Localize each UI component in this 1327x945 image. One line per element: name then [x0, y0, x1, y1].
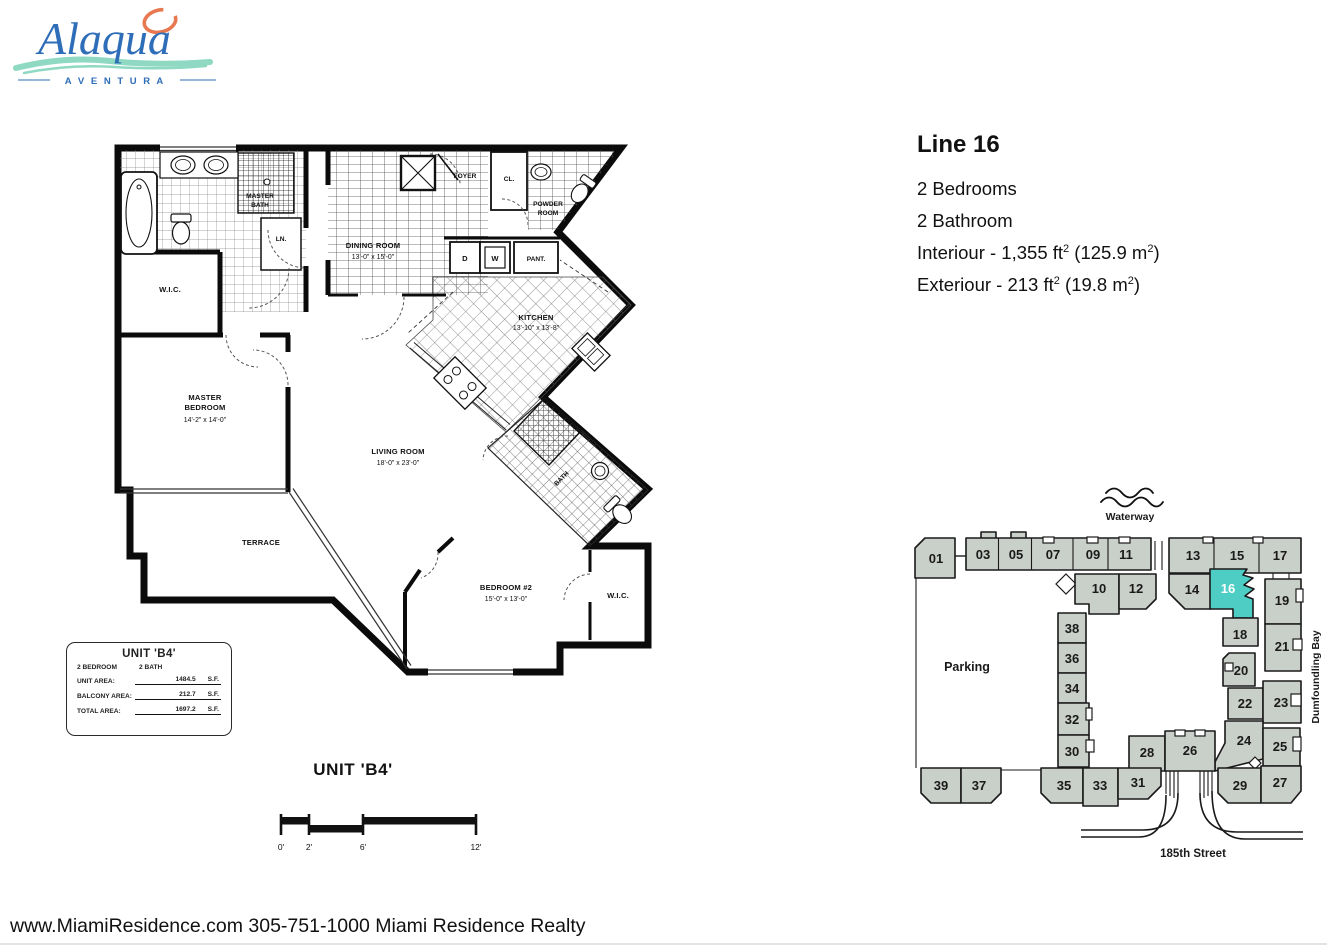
siteplan-unit-35: 35	[1041, 768, 1083, 803]
floorplan-drawing: MASTER BATH W.I.C. LN. FOYER CL. POWDER …	[108, 140, 666, 685]
siteplan-unit-30: 30	[1058, 735, 1094, 767]
shower-head-icon	[264, 179, 270, 185]
logo-subtitle: A V E N T U R A	[65, 76, 166, 87]
unit-box-bath: 2 BATH	[139, 664, 162, 671]
label-linen: LN.	[276, 236, 287, 243]
total-area-unit: S.F.	[208, 706, 219, 713]
siteplan-unit-21: 21	[1265, 624, 1302, 671]
interior-pre: Interiour - 1,355 ft	[917, 242, 1063, 263]
unit-19-label: 19	[1275, 593, 1289, 608]
balcony-area-row: BALCONY AREA: 212.7 S.F.	[77, 691, 221, 700]
label-living-dim: 18'-0" x 23'-0"	[377, 460, 420, 467]
unit-07-label: 07	[1046, 547, 1060, 562]
unit-box-bed: 2 BEDROOM	[77, 664, 139, 671]
unit-27-label: 27	[1273, 775, 1287, 790]
label-dryer: D	[462, 254, 468, 263]
unit-28-label: 28	[1140, 745, 1154, 760]
siteplan-unit-25: 25	[1263, 728, 1301, 766]
total-area-row: TOTAL AREA: 1697.2 S.F.	[77, 706, 221, 715]
siteplan-unit-19: 19	[1265, 579, 1303, 624]
balcony-area-label: BALCONY AREA:	[77, 693, 135, 700]
siteplan-unit-10: 10	[1075, 574, 1119, 614]
unit-33-label: 33	[1093, 778, 1107, 793]
unit-35-label: 35	[1057, 778, 1071, 793]
label-terrace: TERRACE	[242, 538, 280, 547]
label-washer: W	[491, 254, 499, 263]
label-powder-2: ROOM	[538, 210, 559, 217]
siteplan-unit-23: 23	[1263, 681, 1301, 723]
label-master-bath-2: BATH	[251, 202, 269, 209]
total-area-label: TOTAL AREA:	[77, 708, 135, 715]
exterior-post: )	[1134, 274, 1140, 295]
unit-25-label: 25	[1273, 739, 1287, 754]
siteplan-unit-31: 31	[1118, 768, 1161, 799]
unit-11-label: 11	[1119, 547, 1133, 562]
label-living: LIVING ROOM	[371, 447, 424, 456]
unit-13-label: 13	[1186, 548, 1200, 563]
toilet-icon	[171, 214, 191, 244]
label-master-bedroom-1: MASTER	[188, 393, 222, 402]
label-bedroom2-dim: 15'-0" x 13'-0"	[485, 596, 528, 603]
unit-30-label: 30	[1065, 744, 1079, 759]
label-master-bath-1: MASTER	[246, 193, 274, 200]
waterway-waves-icon	[1101, 489, 1163, 507]
label-foyer: FOYER	[454, 173, 477, 180]
footer-contact: www.MiamiResidence.com 305-751-1000 Miam…	[10, 915, 586, 938]
unit-area-value: 1484.5	[175, 676, 195, 683]
label-kitchen-dim: 13'-10" x 13'-8"	[513, 325, 560, 332]
exterior-pre: Exteriour - 213 ft	[917, 274, 1054, 295]
parking-boundary	[916, 578, 1041, 770]
unit-17-label: 17	[1273, 548, 1287, 563]
balcony-area-value: 212.7	[179, 691, 196, 698]
unit-39-label: 39	[934, 778, 948, 793]
siteplan-unit-18: 18	[1223, 618, 1258, 646]
unit-29-label: 29	[1233, 778, 1247, 793]
siteplan-unit-22: 22	[1228, 688, 1263, 719]
siteplan-unit-01: 01	[915, 538, 955, 578]
unit-area-unit: S.F.	[208, 676, 219, 683]
siteplan-unit-14: 14	[1169, 574, 1211, 609]
line-title: Line 16	[917, 131, 1277, 159]
label-wic-master: W.I.C.	[159, 285, 181, 294]
street-label: 185th Street	[1160, 848, 1226, 860]
scale-tick-6: 6'	[360, 842, 367, 852]
siteplan-unit-28: 28	[1129, 736, 1165, 771]
unit-32-label: 32	[1065, 712, 1079, 727]
waterway-label: Waterway	[1106, 511, 1155, 523]
label-closet: CL.	[504, 176, 515, 183]
unit-21-label: 21	[1275, 639, 1289, 654]
alaqua-logo: Alaqua A V E N T U R A	[10, 4, 225, 96]
label-dining-dim: 13'-0" x 15'-0"	[352, 254, 395, 261]
unit-stats-box: UNIT 'B4' 2 BEDROOM 2 BATH UNIT AREA: 14…	[66, 642, 232, 736]
unit-22-label: 22	[1238, 696, 1252, 711]
label-master-bedroom-2: BEDROOM	[184, 403, 225, 412]
unit-36-label: 36	[1065, 651, 1079, 666]
interior-mid: (125.9 m	[1069, 242, 1147, 263]
label-pantry: PANT.	[527, 256, 546, 263]
unit-10-label: 10	[1092, 581, 1106, 596]
parking-label: Parking	[944, 660, 990, 674]
interior-post: )	[1153, 242, 1159, 263]
balcony-area-unit: S.F.	[208, 691, 219, 698]
label-bedroom2: BEDROOM #2	[480, 583, 532, 592]
siteplan-unit-33: 33	[1083, 768, 1118, 806]
siteplan-unit-26: 26	[1165, 730, 1215, 771]
siteplan-unit-27: 27	[1261, 766, 1301, 803]
unit-area-label: UNIT AREA:	[77, 678, 135, 685]
scale-tick-12: 12'	[470, 842, 481, 852]
siteplan-unit-32: 32	[1058, 703, 1092, 735]
unit-34-label: 34	[1065, 681, 1080, 696]
siteplan-unit-36: 36	[1058, 643, 1086, 673]
bath2-sink-icon	[592, 463, 609, 480]
elevator-icon	[401, 156, 435, 190]
diamond-stair-icon	[1056, 574, 1076, 594]
label-wic-bedroom2: W.I.C.	[607, 591, 629, 600]
interior-line: Interiour - 1,355 ft2 (125.9 m2)	[917, 237, 1277, 269]
plan-title: UNIT 'B4'	[253, 760, 453, 780]
siteplan-unit-37: 37	[961, 768, 1001, 803]
scale-bar: 0' 2' 6' 12'	[276, 808, 486, 856]
unit-03-label: 03	[976, 547, 990, 562]
double-sink-icon	[160, 152, 238, 178]
siteplan-unit-16-highlighted: 16	[1210, 569, 1254, 618]
unit-details-panel: Line 16 2 Bedrooms 2 Bathroom Interiour …	[917, 131, 1277, 301]
unit-37-label: 37	[972, 778, 986, 793]
label-powder-1: POWDER	[533, 201, 563, 208]
unit-26-label: 26	[1183, 743, 1197, 758]
siteplan-unit-39: 39	[921, 768, 961, 803]
bay-label: Dumfoundling Bay	[1310, 630, 1322, 723]
siteplan-unit-24: 24	[1215, 721, 1263, 771]
siteplan-unit-34: 34	[1058, 673, 1086, 703]
bedrooms-line: 2 Bedrooms	[917, 173, 1277, 205]
unit-18-label: 18	[1233, 627, 1247, 642]
unit-16-label: 16	[1221, 581, 1235, 596]
unit-area-row: UNIT AREA: 1484.5 S.F.	[77, 676, 221, 685]
unit-box-title: UNIT 'B4'	[77, 648, 221, 660]
unit-01-label: 01	[929, 551, 943, 566]
scale-tick-0: 0'	[278, 842, 285, 852]
siteplan-unit-12: 12	[1119, 574, 1156, 609]
siteplan-unit-38: 38	[1058, 613, 1086, 643]
siteplan-unit-20: 20	[1223, 653, 1255, 686]
unit-05-label: 05	[1009, 547, 1023, 562]
bathtub-icon	[121, 172, 157, 254]
unit-20-label: 20	[1234, 663, 1248, 678]
bathrooms-line: 2 Bathroom	[917, 205, 1277, 237]
logo-brand: Alaqua	[35, 13, 171, 64]
exterior-mid: (19.8 m	[1060, 274, 1128, 295]
unit-14-label: 14	[1185, 582, 1200, 597]
siteplan-unit-29: 29	[1218, 768, 1261, 803]
total-area-value: 1697.2	[175, 706, 195, 713]
unit-09-label: 09	[1086, 547, 1100, 562]
unit-15-label: 15	[1230, 548, 1244, 563]
powder-sink-icon	[531, 164, 551, 180]
unit-24-label: 24	[1237, 733, 1252, 748]
unit-31-label: 31	[1131, 775, 1145, 790]
exterior-line: Exteriour - 213 ft2 (19.8 m2)	[917, 269, 1277, 301]
label-kitchen: KITCHEN	[518, 313, 553, 322]
label-master-bedroom-dim: 14'-2" x 14'-0"	[184, 417, 227, 424]
label-dining: DINING ROOM	[346, 241, 401, 250]
site-keyplan: Waterway 01 03 05 07 09 11 13 15 17 10 1…	[903, 481, 1327, 871]
scale-tick-2: 2'	[306, 842, 313, 852]
unit-38-label: 38	[1065, 621, 1079, 636]
unit-23-label: 23	[1274, 695, 1288, 710]
unit-12-label: 12	[1129, 581, 1143, 596]
